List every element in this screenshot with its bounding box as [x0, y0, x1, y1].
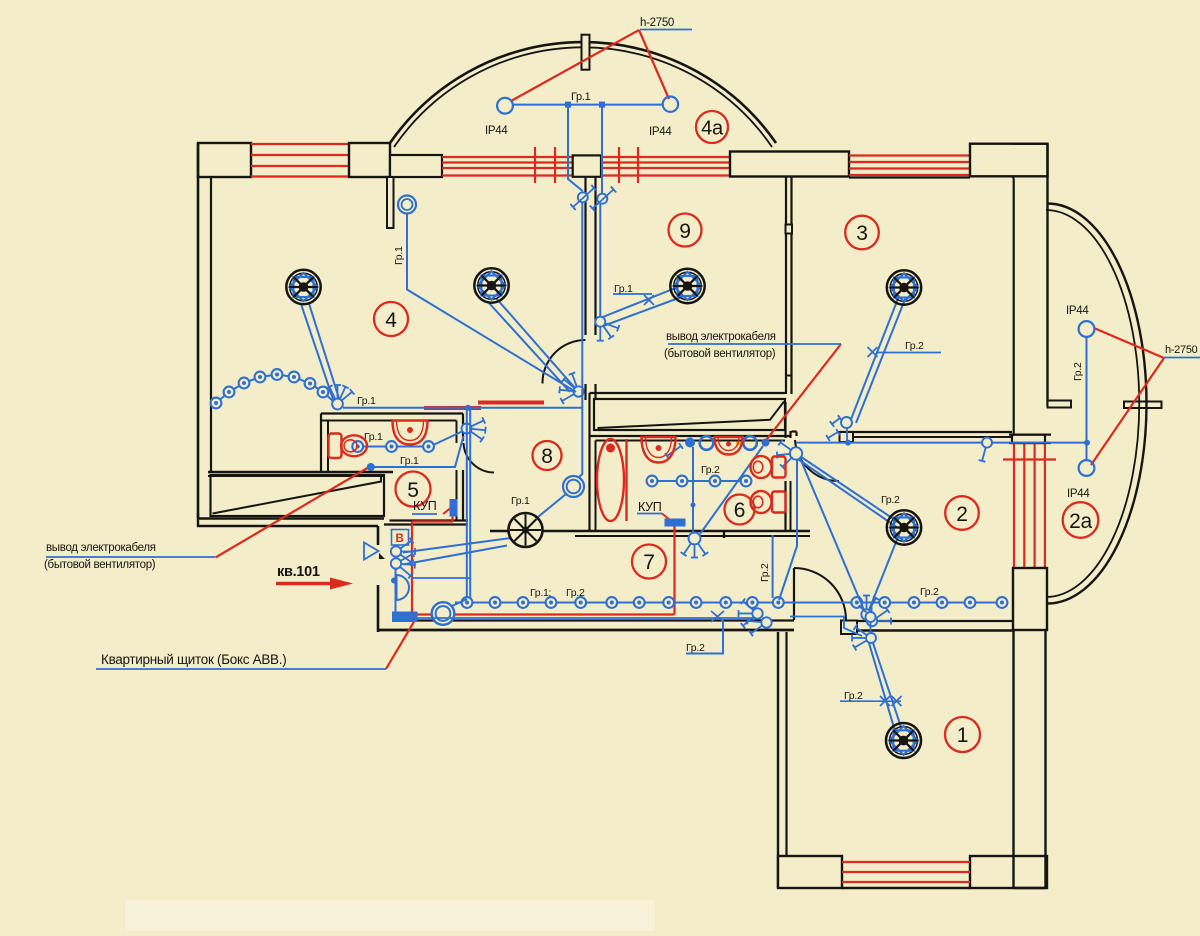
svg-text:IP44: IP44 — [1066, 305, 1089, 317]
svg-text:Гр.2: Гр.2 — [759, 563, 771, 582]
svg-text:6: 6 — [734, 499, 745, 522]
svg-text:Гр.2: Гр.2 — [1072, 362, 1084, 381]
svg-text:КУП: КУП — [413, 499, 436, 513]
svg-text:Гр.1: Гр.1 — [511, 495, 530, 507]
svg-text:КУП: КУП — [638, 500, 661, 514]
svg-text:IP44: IP44 — [649, 126, 672, 138]
svg-text:IP44: IP44 — [1067, 488, 1090, 500]
svg-text:(бытовой вентилятор): (бытовой вентилятор) — [664, 348, 776, 360]
svg-text:Квартирный щиток (Бокс АВВ.): Квартирный щиток (Бокс АВВ.) — [101, 652, 286, 667]
svg-text:Гр.2: Гр.2 — [686, 642, 705, 654]
svg-text:Гр.1: Гр.1 — [357, 395, 376, 407]
svg-text:кв.101: кв.101 — [277, 564, 320, 580]
svg-text:Гр.2: Гр.2 — [920, 586, 939, 598]
svg-text:Гр.2: Гр.2 — [701, 464, 720, 476]
svg-text:вывод электрокабеля: вывод электрокабеля — [46, 542, 156, 554]
svg-text:Гр.1: Гр.1 — [571, 91, 591, 103]
svg-text:Гр.1: Гр.1 — [393, 246, 405, 265]
svg-text:IP44: IP44 — [485, 125, 508, 137]
svg-text:h-2750: h-2750 — [1165, 344, 1198, 356]
svg-text:(бытовой вентилятор): (бытовой вентилятор) — [44, 559, 156, 571]
svg-text:2a: 2a — [1069, 510, 1092, 533]
svg-text:Гр.2: Гр.2 — [881, 494, 900, 506]
svg-text:h-2750: h-2750 — [640, 17, 674, 29]
svg-text:7: 7 — [643, 551, 654, 574]
svg-text:Гр.1: Гр.1 — [400, 455, 419, 467]
svg-text:2: 2 — [956, 503, 967, 526]
svg-text:8: 8 — [541, 445, 552, 468]
svg-text:Гр.2: Гр.2 — [905, 340, 924, 352]
svg-text:9: 9 — [679, 220, 690, 243]
svg-text:Гр.2: Гр.2 — [844, 690, 863, 702]
svg-text:Гр.1;: Гр.1; — [530, 587, 551, 599]
svg-text:Гр.1: Гр.1 — [614, 283, 633, 295]
svg-text:Гр.2: Гр.2 — [566, 587, 585, 599]
svg-text:4: 4 — [385, 309, 397, 332]
svg-text:1: 1 — [957, 724, 968, 747]
svg-text:3: 3 — [856, 222, 867, 245]
svg-text:4a: 4a — [701, 118, 724, 140]
svg-text:вывод электрокабеля: вывод электрокабеля — [666, 331, 776, 343]
svg-text:В: В — [396, 533, 404, 545]
